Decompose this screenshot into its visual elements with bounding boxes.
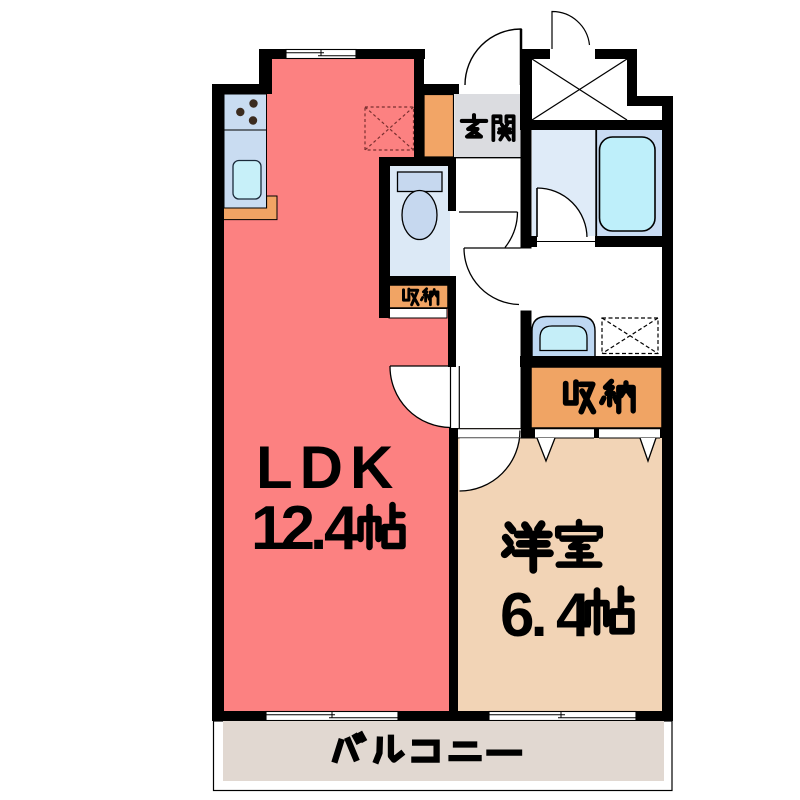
svg-text:12.: 12.: [251, 494, 323, 563]
svg-text:4: 4: [324, 494, 359, 563]
svg-text:6.: 6.: [500, 581, 544, 650]
svg-text:LDK: LDK: [256, 434, 400, 501]
